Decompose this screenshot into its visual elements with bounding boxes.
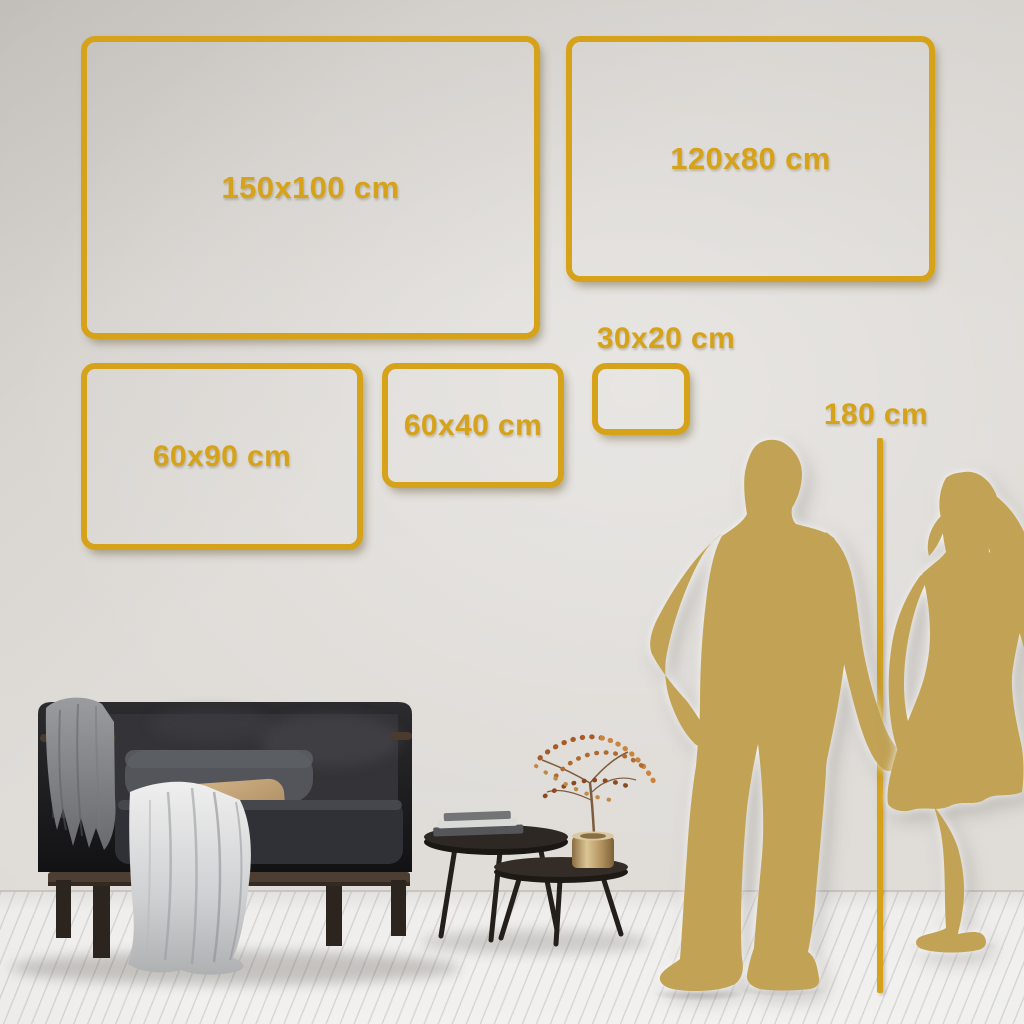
man-silhouette	[640, 436, 906, 1006]
canvas-size-guide-poster: 150x100 cm 120x80 cm 60x90 cm 60x40 cm 3…	[0, 0, 1024, 1024]
woman-silhouette	[884, 462, 1024, 954]
sofa	[38, 698, 412, 975]
size-frame-30x20	[592, 363, 690, 435]
size-frame-60x90-label: 60x90 cm	[153, 440, 291, 474]
sofa-leg	[93, 886, 110, 958]
size-frame-120x80: 120x80 cm	[566, 36, 935, 282]
sofa-wood-dowel-right	[390, 732, 412, 740]
size-frame-150x100-label: 150x100 cm	[221, 170, 399, 206]
dried-branch-plant	[536, 737, 654, 834]
size-frame-60x40-label: 60x40 cm	[404, 409, 542, 443]
books	[433, 810, 524, 836]
woman-leg	[916, 806, 986, 953]
brass-vase	[572, 832, 614, 869]
coffee-tables	[424, 737, 654, 944]
size-frame-30x20-label: 30x20 cm	[586, 322, 746, 356]
woman-hair-left	[928, 516, 945, 556]
sofa-leg	[391, 880, 406, 936]
size-frame-150x100: 150x100 cm	[81, 36, 540, 339]
size-frame-60x40: 60x40 cm	[382, 363, 564, 488]
table-floor-shadow	[420, 930, 650, 954]
living-room-scene	[0, 680, 700, 1024]
sofa-leg	[56, 880, 71, 938]
size-frame-60x90: 60x90 cm	[81, 363, 363, 550]
size-frame-120x80-label: 120x80 cm	[670, 141, 830, 177]
sofa-leg	[326, 886, 342, 946]
berries	[540, 737, 602, 758]
height-reference-label: 180 cm	[810, 398, 942, 432]
